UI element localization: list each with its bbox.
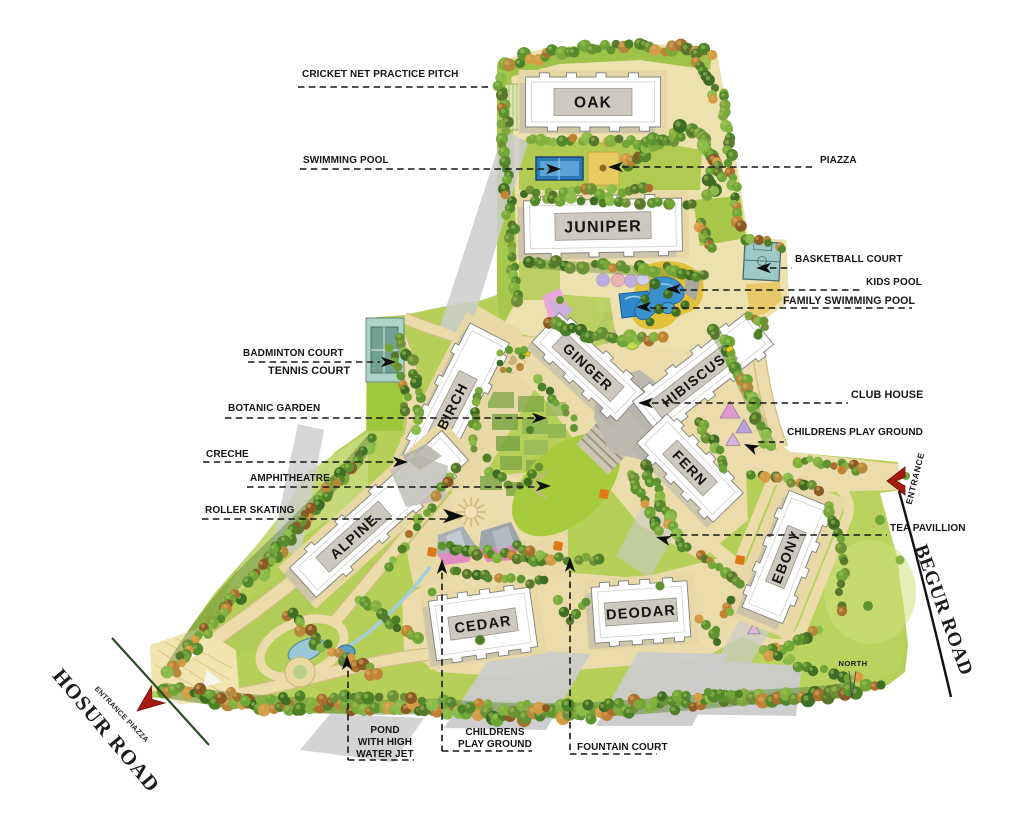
svg-text:CRICKET NET PRACTICE PITCH: CRICKET NET PRACTICE PITCH — [302, 69, 459, 80]
svg-text:FAMILY SWIMMING POOL: FAMILY SWIMMING POOL — [783, 295, 916, 307]
svg-text:ROLLER SKATING: ROLLER SKATING — [205, 505, 295, 516]
svg-text:CRECHE: CRECHE — [206, 449, 249, 460]
svg-text:KIDS POOL: KIDS POOL — [866, 277, 922, 288]
svg-text:SWIMMING POOL: SWIMMING POOL — [303, 155, 389, 166]
svg-text:TENNIS COURT: TENNIS COURT — [268, 365, 350, 377]
svg-text:CHILDRENS PLAY GROUND: CHILDRENS PLAY GROUND — [787, 427, 923, 438]
svg-text:BOTANIC GARDEN: BOTANIC GARDEN — [228, 403, 320, 414]
svg-text:OAK: OAK — [574, 95, 612, 112]
svg-text:FOUNTAIN COURT: FOUNTAIN COURT — [577, 742, 668, 753]
svg-text:CHILDRENS: CHILDRENS — [465, 727, 524, 738]
svg-text:JUNIPER: JUNIPER — [564, 218, 642, 236]
svg-text:AMPHITHEATRE: AMPHITHEATRE — [250, 473, 330, 484]
svg-text:WATER JET: WATER JET — [356, 749, 413, 760]
svg-text:BADMINTON COURT: BADMINTON COURT — [243, 348, 344, 359]
svg-text:PLAY GROUND: PLAY GROUND — [458, 739, 532, 750]
svg-text:CLUB HOUSE: CLUB HOUSE — [851, 389, 923, 401]
svg-text:POND: POND — [370, 725, 399, 736]
svg-text:WITH HIGH: WITH HIGH — [358, 737, 412, 748]
svg-text:BASKETBALL COURT: BASKETBALL COURT — [795, 254, 903, 265]
svg-text:PIAZZA: PIAZZA — [820, 155, 857, 166]
svg-text:NORTH: NORTH — [839, 659, 868, 668]
svg-text:TEA PAVILLION: TEA PAVILLION — [890, 523, 966, 534]
